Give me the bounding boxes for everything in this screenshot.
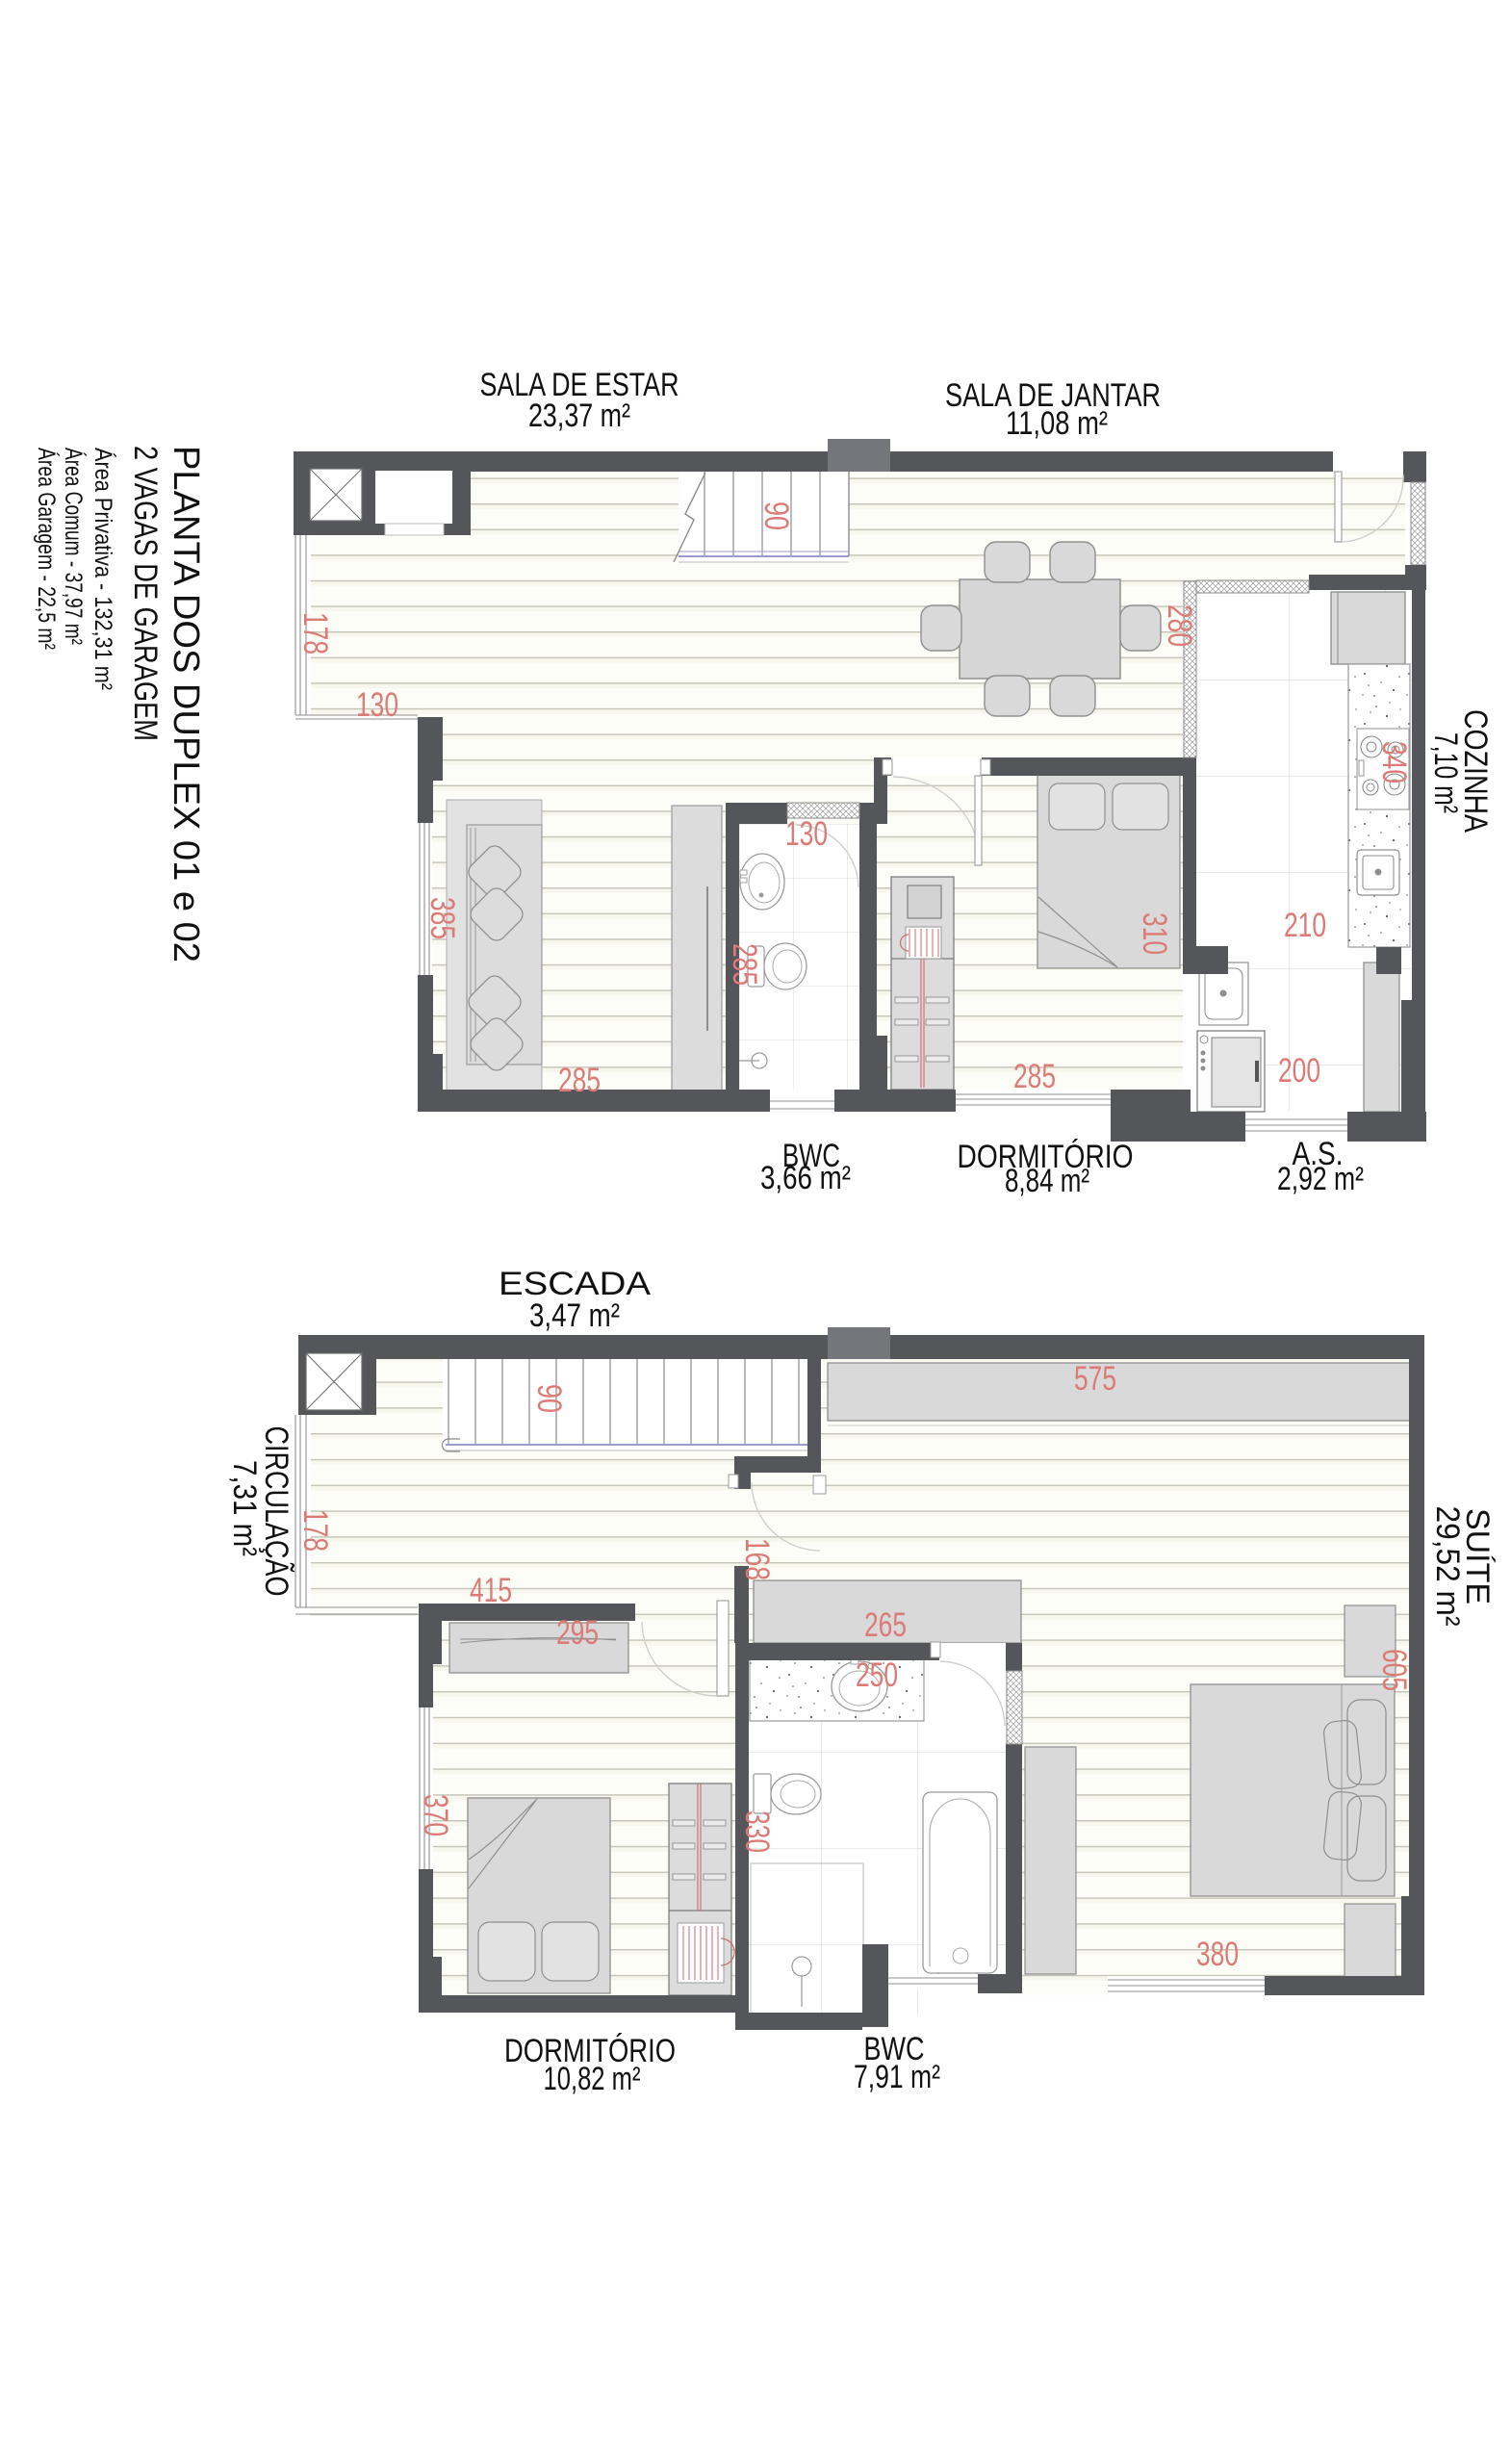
svg-text:29,52 m²: 29,52 m² xyxy=(1429,1506,1466,1627)
svg-text:90: 90 xyxy=(530,1384,568,1413)
svg-text:11,08 m²: 11,08 m² xyxy=(1006,405,1108,442)
svg-text:385: 385 xyxy=(423,897,461,939)
svg-text:415: 415 xyxy=(470,1572,512,1609)
svg-text:2 VAGAS DE GARAGEM: 2 VAGAS DE GARAGEM xyxy=(127,446,164,741)
svg-text:23,37 m²: 23,37 m² xyxy=(528,398,630,434)
svg-text:340: 340 xyxy=(1375,741,1413,783)
svg-text:370: 370 xyxy=(417,1794,454,1836)
svg-text:7,91 m²: 7,91 m² xyxy=(854,2059,940,2095)
svg-text:130: 130 xyxy=(356,686,398,724)
svg-text:280: 280 xyxy=(1161,604,1198,647)
svg-text:2,92 m²: 2,92 m² xyxy=(1277,1161,1364,1197)
svg-text:10,82 m²: 10,82 m² xyxy=(544,2061,641,2097)
svg-text:8,84 m²: 8,84 m² xyxy=(1005,1163,1089,1199)
svg-text:90: 90 xyxy=(757,501,795,530)
svg-text:Área Privativa - 132,31 m²: Área Privativa - 132,31 m² xyxy=(90,448,117,690)
svg-text:7,10 m²: 7,10 m² xyxy=(1427,732,1464,813)
svg-text:Área Garagem - 22,5 m²: Área Garagem - 22,5 m² xyxy=(33,448,61,650)
svg-text:285: 285 xyxy=(558,1062,601,1099)
svg-text:Área Comum - 37,97 m²: Área Comum - 37,97 m² xyxy=(60,448,88,645)
svg-text:265: 265 xyxy=(864,1606,907,1644)
svg-text:130: 130 xyxy=(785,815,828,853)
svg-text:3,47 m²: 3,47 m² xyxy=(529,1297,620,1334)
svg-text:178: 178 xyxy=(296,1509,334,1552)
svg-text:285: 285 xyxy=(1013,1058,1056,1095)
svg-text:380: 380 xyxy=(1196,1936,1239,1973)
svg-text:250: 250 xyxy=(856,1656,898,1694)
svg-text:200: 200 xyxy=(1278,1052,1320,1090)
svg-text:168: 168 xyxy=(738,1538,776,1580)
svg-text:295: 295 xyxy=(556,1614,599,1652)
svg-text:330: 330 xyxy=(738,1810,776,1853)
svg-text:210: 210 xyxy=(1284,907,1326,944)
svg-text:7,31 m²: 7,31 m² xyxy=(226,1460,263,1556)
svg-text:310: 310 xyxy=(1136,912,1173,955)
svg-text:605: 605 xyxy=(1375,1649,1413,1691)
svg-text:PLANTA DOS DUPLEX 01 e 02: PLANTA DOS DUPLEX 01 e 02 xyxy=(166,446,206,962)
svg-text:575: 575 xyxy=(1074,1360,1116,1398)
svg-text:178: 178 xyxy=(296,612,334,654)
svg-text:3,66 m²: 3,66 m² xyxy=(760,1160,851,1196)
svg-text:285: 285 xyxy=(726,943,763,986)
